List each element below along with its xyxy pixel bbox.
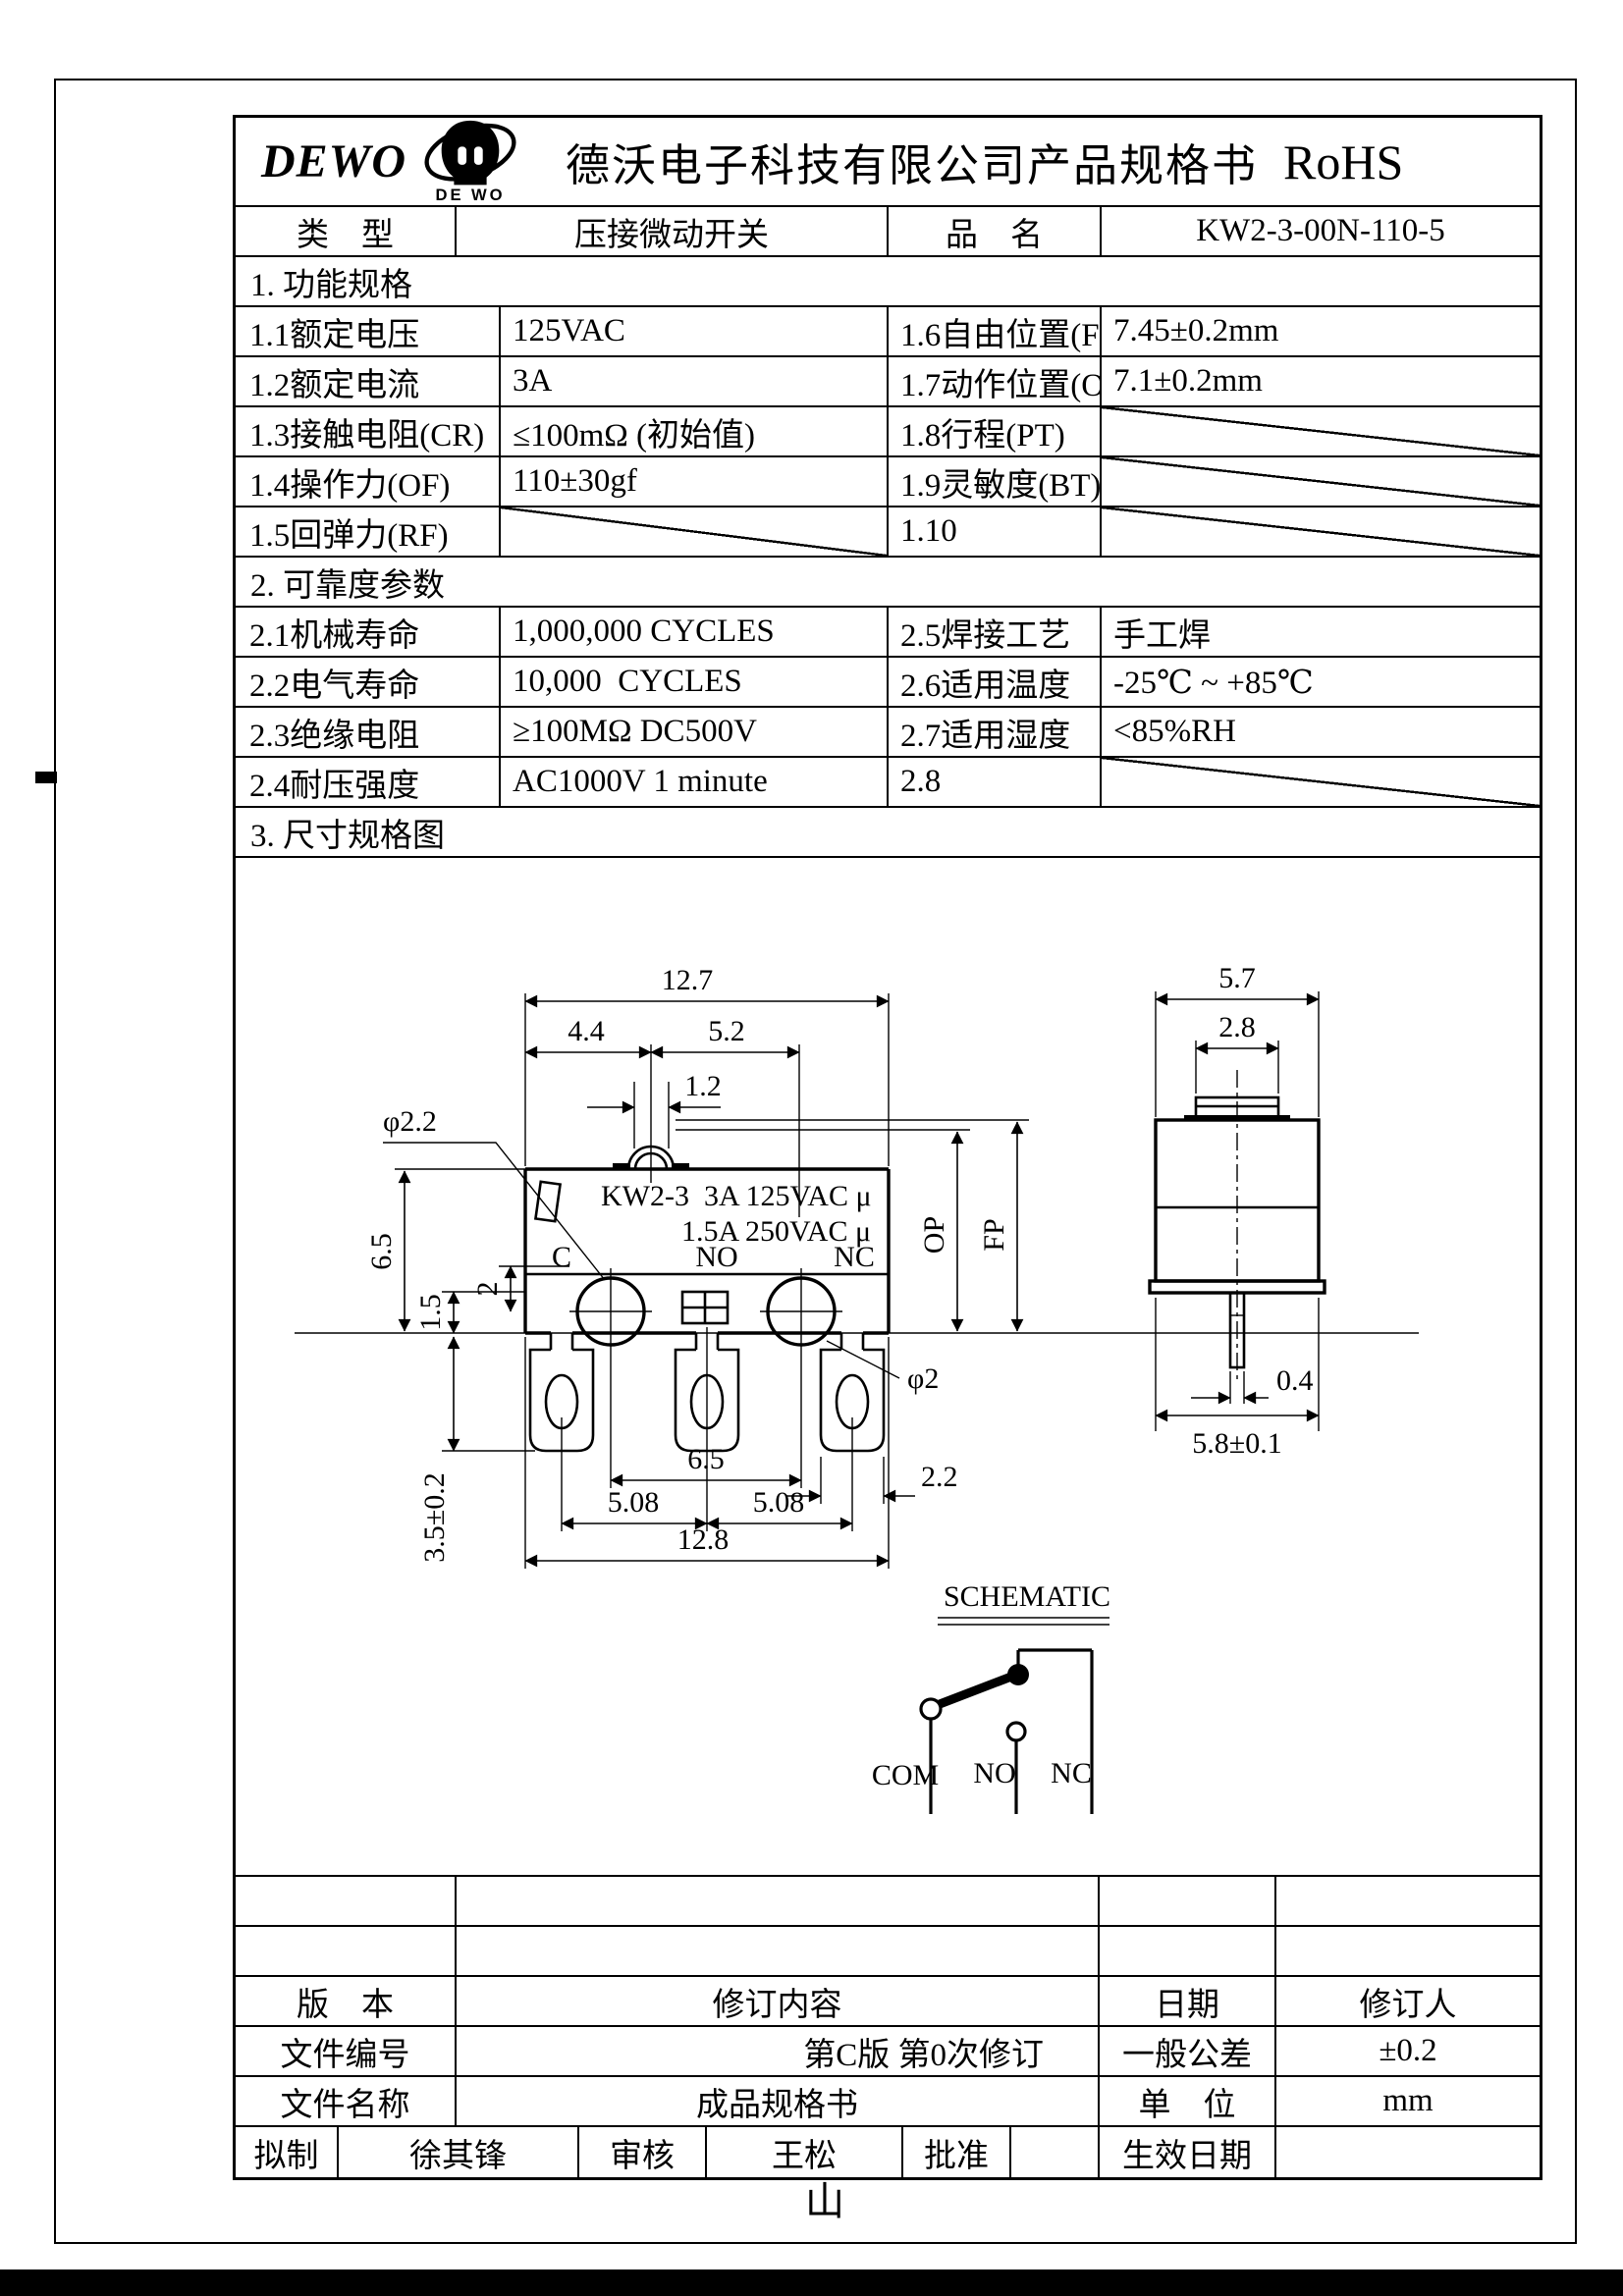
doc-number-label: 文件编号 [236, 2027, 457, 2075]
dim-button-width: 1.2 [684, 1070, 722, 1102]
dim-pin-width: 2.2 [921, 1461, 958, 1493]
version-label: 版 本 [236, 1977, 457, 2025]
spec-label: 2.2电气寿命 [236, 658, 501, 706]
front-view: 12.7 4.4 5.2 1.2 φ2.2 [295, 964, 1419, 1569]
approve-label: 批准 [903, 2127, 1011, 2177]
spec-sheet-page: DEWO DE WO 德沃电子科技有限公司产品规格书 RoHS 类 型 压接微动… [0, 0, 1623, 2296]
effective-date-empty [1276, 2127, 1540, 2177]
left-border-tick [35, 772, 57, 783]
revision-empty-row [236, 1927, 1540, 1977]
dim-side-width: 5.7 [1218, 962, 1256, 994]
unit-value: mm [1276, 2077, 1540, 2125]
table-row: 2.2电气寿命 10,000 CYCLES 2.6适用温度 -25℃ ~ +85… [236, 658, 1540, 708]
empty-cell [236, 1877, 457, 1925]
spec-value: 10,000 CYCLES [501, 658, 889, 706]
revision-note: 第C版 第0次修订 [457, 2027, 1100, 2075]
spec-label: 1.6自由位置(FP) [889, 307, 1102, 355]
company-title: 德沃电子科技有限公司产品规格书 [566, 130, 1258, 193]
check-label: 审核 [579, 2127, 707, 2177]
spec-label: 2.3绝缘电阻 [236, 708, 501, 756]
empty-cell [1276, 1877, 1540, 1925]
spec-value: 110±30gf [501, 457, 889, 506]
table-row: 1.2额定电流 3A 1.7动作位置(OP) 7.1±0.2mm [236, 357, 1540, 407]
schematic: SCHEMATIC COM NO NC [872, 1580, 1110, 1814]
spec-value: 3A [501, 357, 889, 405]
section1-header-row: 1. 功能规格 [236, 257, 1540, 307]
dim-pitch-left: 5.08 [608, 1486, 660, 1519]
empty-cell [457, 1927, 1100, 1975]
tolerance-label: 一般公差 [1100, 2027, 1276, 2075]
spec-label: 1.2额定电流 [236, 357, 501, 405]
dim-body-height: 6.5 [365, 1233, 398, 1270]
schematic-com-label: COM [872, 1759, 939, 1791]
terminal-label-no: NO [695, 1241, 737, 1273]
date-label: 日期 [1100, 1977, 1276, 2025]
section2-header-row: 2. 可靠度参数 [236, 558, 1540, 608]
spec-label: 2.4耐压强度 [236, 758, 501, 806]
empty-cell [1100, 1927, 1276, 1975]
spec-label: 2.8 [889, 758, 1102, 806]
header-row: DEWO DE WO 德沃电子科技有限公司产品规格书 RoHS [236, 118, 1540, 207]
spec-label: 1.7动作位置(OP) [889, 357, 1102, 405]
spec-value: <85%RH [1102, 708, 1540, 756]
schematic-title: SCHEMATIC [944, 1580, 1110, 1613]
spec-value: 7.1±0.2mm [1102, 357, 1540, 405]
terminal-label-c: C [552, 1241, 571, 1273]
table-row: 2.3绝缘电阻 ≥100MΩ DC500V 2.7适用湿度 <85%RH [236, 708, 1540, 758]
dim-right-segment: 5.2 [708, 1015, 745, 1047]
empty-cell [1276, 1927, 1540, 1975]
spec-label: 2.1机械寿命 [236, 608, 501, 656]
section2-title: 2. 可靠度参数 [236, 558, 1540, 606]
spec-value: 手工焊 [1102, 608, 1540, 656]
schematic-nc-label: NC [1051, 1757, 1092, 1789]
dim-pitch-right: 5.08 [753, 1486, 805, 1519]
dim-pin-length: 3.5±0.2 [418, 1472, 451, 1562]
table-row: 2.4耐压强度 AC1000V 1 minute 2.8 [236, 758, 1540, 808]
spec-value: 125VAC [501, 307, 889, 355]
spec-label: 1.10 [889, 507, 1102, 556]
spec-value: ≤100mΩ (初始值) [501, 407, 889, 455]
dim-overall-width: 12.7 [662, 964, 714, 996]
spec-label: 1.3接触电阻(CR) [236, 407, 501, 455]
table-row: 1.5回弹力(RF) 1.10 [236, 507, 1540, 558]
spec-label: 1.4操作力(OF) [236, 457, 501, 506]
table-row: 2.1机械寿命 1,000,000 CYCLES 2.5焊接工艺 手工焊 [236, 608, 1540, 658]
table-row: 1.1额定电压 125VAC 1.6自由位置(FP) 7.45±0.2mm [236, 307, 1540, 357]
dim-side-button-width: 2.8 [1218, 1011, 1256, 1043]
spec-label: 1.5回弹力(RF) [236, 507, 501, 556]
dim-fp-label: FP [978, 1218, 1010, 1251]
check-name: 王松 [707, 2127, 903, 2177]
table-row: 1.4操作力(OF) 110±30gf 1.9灵敏度(BT) [236, 457, 1540, 507]
tolerance-value: ±0.2 [1276, 2027, 1540, 2075]
dimension-drawing: 12.7 4.4 5.2 1.2 φ2.2 [236, 858, 1540, 1877]
unit-label: 单 位 [1100, 2077, 1276, 2125]
dim-hole-diameter: φ2.2 [383, 1105, 437, 1138]
dim-side-height: 5.8±0.1 [1192, 1427, 1281, 1460]
spec-value-empty [1102, 457, 1540, 506]
dim-hole-span: 6.5 [687, 1443, 725, 1475]
skull-logo-icon: DE WO [412, 118, 528, 207]
doc-number-row: 文件编号 第C版 第0次修订 一般公差 ±0.2 [236, 2027, 1540, 2077]
page-footer-mark: 山 [795, 2179, 854, 2224]
table-row: 1.3接触电阻(CR) ≤100mΩ (初始值) 1.8行程(PT) [236, 407, 1540, 457]
type-row: 类 型 压接微动开关 品 名 KW2-3-00N-110-5 [236, 207, 1540, 257]
dim-op-label: OP [918, 1216, 950, 1254]
doc-name-value: 成品规格书 [457, 2077, 1100, 2125]
section3-header-row: 3. 尺寸规格图 [236, 808, 1540, 858]
spec-value-empty [501, 507, 889, 556]
spec-value-empty [1102, 407, 1540, 455]
brand-logo-text: DEWO [261, 134, 406, 188]
revision-header-row: 版 本 修订内容 日期 修订人 [236, 1977, 1540, 2027]
revision-empty-row [236, 1877, 1540, 1927]
spec-table-frame: DEWO DE WO 德沃电子科技有限公司产品规格书 RoHS 类 型 压接微动… [233, 115, 1542, 2180]
body-marking-line1: KW2-3 3A 125VAC μ [601, 1180, 872, 1212]
terminal-label-nc: NC [834, 1241, 875, 1273]
effective-date-label: 生效日期 [1100, 2127, 1276, 2177]
empty-cell [1100, 1877, 1276, 1925]
spec-label: 1.1额定电压 [236, 307, 501, 355]
dim-lip-height: 1.5 [414, 1294, 447, 1331]
schematic-no-label: NO [973, 1757, 1015, 1789]
doc-name-label: 文件名称 [236, 2077, 457, 2125]
spec-label: 1.9灵敏度(BT) [889, 457, 1102, 506]
section1-title: 1. 功能规格 [236, 257, 1540, 305]
scan-bottom-bar [0, 2269, 1623, 2296]
dim-side-pin-width: 0.4 [1276, 1364, 1314, 1397]
spec-value-empty [1102, 758, 1540, 806]
spec-value: -25℃ ~ +85℃ [1102, 658, 1540, 706]
type-label: 类 型 [236, 207, 457, 255]
dim-left-segment: 4.4 [568, 1015, 605, 1047]
draft-name: 徐其锋 [339, 2127, 579, 2177]
spec-label: 2.6适用温度 [889, 658, 1102, 706]
spec-label: 2.7适用湿度 [889, 708, 1102, 756]
dim-base-width: 12.8 [677, 1523, 730, 1556]
empty-cell [457, 1877, 1100, 1925]
dimension-drawing-row: 12.7 4.4 5.2 1.2 φ2.2 [236, 858, 1540, 1877]
signature-row: 拟制 徐其锋 审核 王松 批准 生效日期 [236, 2127, 1540, 2177]
spec-value-empty [1102, 507, 1540, 556]
spec-value: ≥100MΩ DC500V [501, 708, 889, 756]
spec-label: 1.8行程(PT) [889, 407, 1102, 455]
header: DEWO DE WO 德沃电子科技有限公司产品规格书 RoHS [236, 118, 1540, 205]
product-name-value: KW2-3-00N-110-5 [1102, 207, 1540, 255]
dim-pin-hole-diameter: φ2 [907, 1362, 939, 1395]
empty-cell [236, 1927, 457, 1975]
section3-title: 3. 尺寸规格图 [236, 808, 1540, 856]
doc-name-row: 文件名称 成品规格书 单 位 mm [236, 2077, 1540, 2127]
skull-logo-caption: DE WO [436, 186, 506, 202]
product-name-label: 品 名 [889, 207, 1102, 255]
side-view: 5.7 2.8 [1150, 962, 1325, 1460]
spec-value: 7.45±0.2mm [1102, 307, 1540, 355]
spec-value: AC1000V 1 minute [501, 758, 889, 806]
revised-by-label: 修订人 [1276, 1977, 1540, 2025]
approve-name-empty [1011, 2127, 1100, 2177]
rohs-mark: RoHS [1283, 133, 1403, 190]
spec-value: 1,000,000 CYCLES [501, 608, 889, 656]
draft-label: 拟制 [236, 2127, 339, 2177]
revision-content-label: 修订内容 [457, 1977, 1100, 2025]
type-value: 压接微动开关 [457, 207, 889, 255]
dim-hole-offset: 2 [471, 1282, 504, 1297]
spec-label: 2.5焊接工艺 [889, 608, 1102, 656]
